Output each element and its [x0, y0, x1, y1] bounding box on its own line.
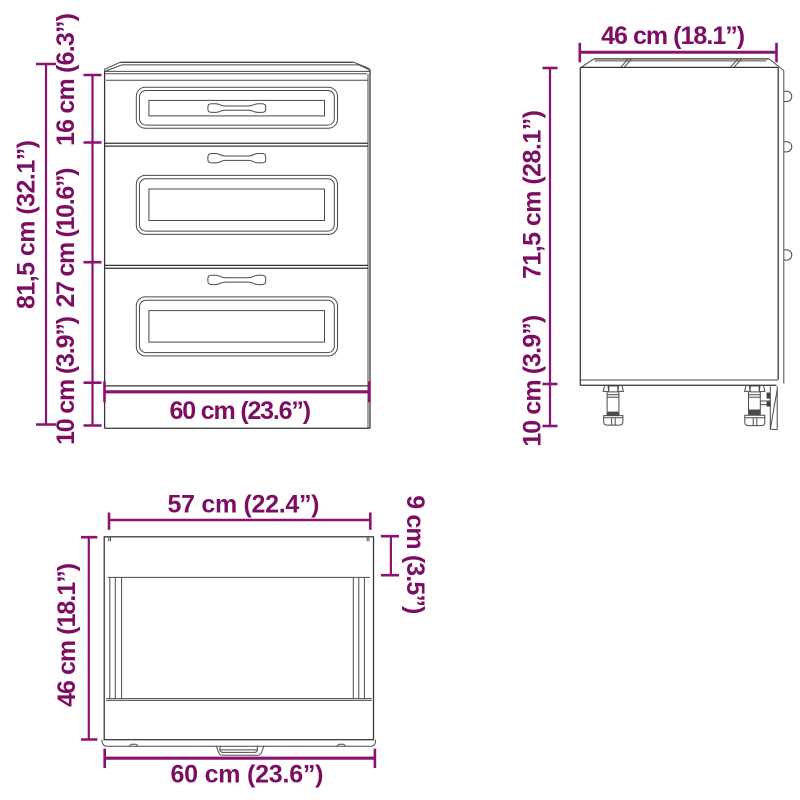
svg-text:81,5 cm (32.1”): 81,5 cm (32.1”)	[12, 140, 40, 309]
svg-text:27 cm (10.6”): 27 cm (10.6”)	[52, 168, 80, 308]
svg-text:16 cm (6.3”): 16 cm (6.3”)	[52, 13, 80, 146]
svg-text:60 cm (23.6”): 60 cm (23.6”)	[170, 397, 311, 425]
svg-text:71,5 cm (28.1”): 71,5 cm (28.1”)	[519, 110, 547, 279]
svg-text:9 cm (3.5”): 9 cm (3.5”)	[401, 495, 429, 614]
svg-text:57 cm (22.4”): 57 cm (22.4”)	[168, 491, 320, 519]
svg-text:46 cm (18.1”): 46 cm (18.1”)	[53, 563, 81, 707]
svg-text:46 cm (18.1”): 46 cm (18.1”)	[601, 22, 745, 50]
svg-text:10 cm (3.9”): 10 cm (3.9”)	[52, 316, 80, 445]
svg-text:60 cm (23.6”): 60 cm (23.6”)	[171, 761, 324, 789]
svg-text:10 cm (3.9”): 10 cm (3.9”)	[519, 315, 547, 447]
